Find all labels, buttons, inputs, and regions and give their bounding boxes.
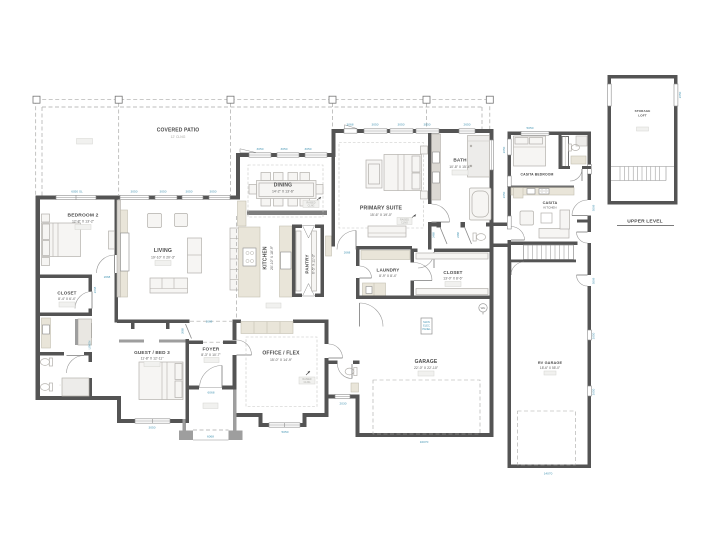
svg-text:3068: 3068: [592, 204, 596, 211]
svg-text:8'-4" X 6'-4": 8'-4" X 6'-4": [58, 297, 76, 301]
svg-text:10'-8" X 15'-4": 10'-8" X 15'-4": [449, 165, 471, 169]
svg-text:CASITA BEDROOM: CASITA BEDROOM: [521, 173, 554, 177]
svg-text:8'-3" X 10'-7": 8'-3" X 10'-7": [201, 353, 221, 357]
svg-text:UPPER LEVEL: UPPER LEVEL: [627, 219, 663, 225]
svg-text:15'-6" X 19'-0": 15'-6" X 19'-0": [370, 213, 393, 217]
svg-text:11'-8" X 12'-11": 11'-8" X 12'-11": [141, 357, 165, 361]
svg-text:6'-5" X 11'-3": 6'-5" X 11'-3": [312, 253, 316, 274]
svg-text:2668: 2668: [206, 320, 213, 324]
svg-text:KITCHEN: KITCHEN: [263, 246, 269, 270]
svg-text:3050: 3050: [186, 190, 193, 194]
svg-text:WH: WH: [481, 306, 486, 310]
svg-text:16070: 16070: [420, 440, 429, 444]
svg-text:6068: 6068: [208, 391, 215, 395]
svg-text:3050: 3050: [424, 123, 431, 127]
svg-text:2650: 2650: [592, 332, 596, 339]
svg-text:2468: 2468: [456, 232, 460, 238]
svg-text:2650: 2650: [678, 91, 682, 98]
svg-text:3050: 3050: [149, 426, 156, 430]
svg-text:22'-0" X 22'-10": 22'-0" X 22'-10": [414, 366, 439, 370]
svg-text:3050: 3050: [398, 123, 405, 127]
svg-text:2668: 2668: [344, 251, 351, 255]
svg-text:6068: 6068: [207, 435, 214, 439]
svg-text:CLNG: CLNG: [304, 381, 311, 384]
svg-text:GARAGE: GARAGE: [415, 359, 438, 365]
svg-text:LINEN: LINEN: [88, 341, 92, 350]
svg-text:CLOSET: CLOSET: [443, 270, 462, 275]
svg-text:14070: 14070: [544, 472, 553, 476]
svg-text:2650: 2650: [464, 123, 471, 127]
svg-text:2668: 2668: [104, 275, 111, 279]
svg-text:2468: 2468: [432, 232, 436, 238]
svg-text:3050: 3050: [257, 147, 264, 151]
svg-text:GUEST / BED 3: GUEST / BED 3: [134, 350, 170, 355]
svg-text:LIVING: LIVING: [154, 248, 172, 254]
svg-text:14'-2" X 13'-6": 14'-2" X 13'-6": [272, 190, 295, 194]
svg-text:RV GARAGE: RV GARAGE: [538, 361, 563, 365]
svg-text:CLOSET: CLOSET: [57, 291, 76, 296]
svg-text:3050: 3050: [210, 190, 217, 194]
svg-text:COVERED PATIO: COVERED PATIO: [157, 128, 200, 134]
svg-text:19'-10" X 20'-3": 19'-10" X 20'-3": [151, 256, 176, 260]
svg-text:LOFT: LOFT: [638, 114, 646, 118]
svg-text:2650: 2650: [502, 146, 506, 153]
svg-text:20'-10" X 18'-9": 20'-10" X 18'-9": [270, 245, 274, 270]
svg-text:13'-0" X 8'-6": 13'-0" X 8'-6": [443, 277, 463, 281]
svg-text:2668: 2668: [181, 328, 185, 334]
svg-text:KITCHEN: KITCHEN: [543, 206, 556, 210]
svg-text:3068: 3068: [347, 123, 354, 127]
svg-text:ELEC: ELEC: [423, 324, 430, 328]
svg-text:3050: 3050: [281, 147, 288, 151]
svg-text:BEDROOM 2: BEDROOM 2: [68, 213, 99, 219]
svg-text:3050: 3050: [131, 190, 138, 194]
svg-text:18'-6" X 55'-0": 18'-6" X 55'-0": [540, 366, 560, 370]
svg-text:PRIMARY SUITE: PRIMARY SUITE: [360, 206, 403, 212]
svg-text:5050: 5050: [527, 126, 534, 130]
svg-text:PANTRY: PANTRY: [305, 254, 310, 273]
svg-text:MAIN: MAIN: [423, 320, 430, 324]
svg-text:8'-9" X 8'-4": 8'-9" X 8'-4": [379, 274, 397, 278]
svg-text:CASITA: CASITA: [543, 201, 558, 205]
svg-text:3050: 3050: [372, 123, 379, 127]
svg-text:6050 SL: 6050 SL: [71, 190, 83, 194]
svg-text:12'-8" X 13'-2": 12'-8" X 13'-2": [72, 220, 95, 224]
svg-text:STORAGE: STORAGE: [635, 109, 651, 113]
svg-text:BATH: BATH: [453, 158, 467, 163]
svg-text:PANEL: PANEL: [422, 327, 431, 331]
svg-text:12' CLNG: 12' CLNG: [171, 135, 186, 139]
svg-text:OFFICE / FLEX: OFFICE / FLEX: [262, 351, 300, 357]
svg-text:15'-0" X 14'-9": 15'-0" X 14'-9": [270, 358, 293, 362]
svg-text:CLNG: CLNG: [308, 205, 315, 208]
svg-text:2030: 2030: [340, 402, 347, 406]
svg-text:LAUNDRY: LAUNDRY: [377, 268, 400, 273]
svg-text:5050: 5050: [282, 430, 289, 434]
svg-text:2668: 2668: [93, 286, 97, 293]
svg-text:3050: 3050: [305, 147, 312, 151]
svg-text:2650: 2650: [502, 191, 506, 198]
svg-text:2650: 2650: [592, 388, 596, 395]
svg-text:CLNG: CLNG: [401, 222, 408, 225]
svg-text:DINING: DINING: [274, 183, 292, 189]
svg-text:3068: 3068: [592, 277, 596, 284]
svg-text:FOYER: FOYER: [203, 347, 220, 352]
svg-text:3050: 3050: [160, 190, 167, 194]
